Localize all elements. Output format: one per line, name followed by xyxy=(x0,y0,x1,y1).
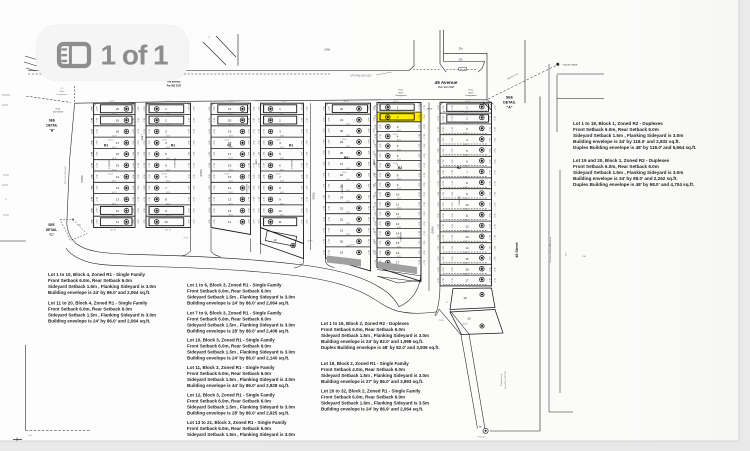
svg-text:45.72: 45.72 xyxy=(166,203,170,205)
svg-text:25.17: 25.17 xyxy=(436,192,438,197)
svg-text:24: 24 xyxy=(340,195,344,199)
svg-text:DETAIL: DETAIL xyxy=(46,228,57,232)
svg-text:36.17: 36.17 xyxy=(378,241,380,246)
svg-text:45.72: 45.72 xyxy=(346,146,350,148)
svg-text:36.17: 36.17 xyxy=(252,152,254,157)
svg-text:36.17: 36.17 xyxy=(367,184,369,189)
svg-text:BLOCK 2: BLOCK 2 xyxy=(399,232,401,242)
svg-text:SEE: SEE xyxy=(49,119,55,123)
svg-text:45.72: 45.72 xyxy=(280,169,284,171)
svg-text:27.43: 27.43 xyxy=(439,320,444,322)
svg-text:123.08: 123.08 xyxy=(162,140,167,142)
svg-text:1003 Plan 972 2752: 1003 Plan 972 2752 xyxy=(64,166,66,185)
svg-text:15: 15 xyxy=(116,164,120,168)
svg-text:36.17: 36.17 xyxy=(137,107,139,112)
svg-text:45.72: 45.72 xyxy=(280,124,284,126)
svg-text:Lot 7 to 9, Block 3, Zoned R1: Lot 7 to 9, Block 3, Zoned R1 - Single F… xyxy=(187,311,282,316)
svg-text:36.17: 36.17 xyxy=(305,197,307,202)
svg-text:Building envelope is 24' by 86: Building envelope is 24' by 86.0' and 2,… xyxy=(48,318,150,323)
svg-text:45.72: 45.72 xyxy=(112,113,116,115)
svg-text:36.17: 36.17 xyxy=(132,129,134,134)
svg-text:Lot 12, Block 3, Zoned R1 - Si: Lot 12, Block 3, Zoned R1 - Single Famil… xyxy=(187,393,275,398)
svg-text:25.17: 25.17 xyxy=(441,267,443,272)
svg-text:36.17: 36.17 xyxy=(132,152,134,157)
svg-text:36.17: 36.17 xyxy=(207,186,209,191)
svg-text:36.17: 36.17 xyxy=(142,129,144,134)
svg-text:123.08: 123.08 xyxy=(108,140,113,142)
svg-text:Front Setback 6.0m, Rear Setba: Front Setback 6.0m, Rear Setback 6.0m xyxy=(48,278,132,283)
svg-text:10: 10 xyxy=(396,193,400,197)
svg-text:45.72: 45.72 xyxy=(229,124,233,126)
svg-text:36.17: 36.17 xyxy=(418,231,420,236)
svg-text:36.17: 36.17 xyxy=(90,208,92,213)
svg-text:123.08: 123.08 xyxy=(276,173,281,175)
svg-text:10: 10 xyxy=(465,203,469,207)
svg-text:123.08: 123.08 xyxy=(342,139,347,141)
svg-text:45.72: 45.72 xyxy=(397,130,401,132)
svg-text:12: 12 xyxy=(116,209,120,213)
svg-text:25.17: 25.17 xyxy=(451,149,453,154)
svg-text:36.17: 36.17 xyxy=(192,140,194,145)
svg-text:36.17: 36.17 xyxy=(247,219,249,224)
svg-text:25.17: 25.17 xyxy=(493,138,495,143)
svg-text:36.17: 36.17 xyxy=(327,217,329,222)
svg-text:R1: R1 xyxy=(289,143,293,147)
svg-text:36.17: 36.17 xyxy=(212,163,214,168)
svg-text:36.17: 36.17 xyxy=(90,197,92,202)
svg-text:36.17: 36.17 xyxy=(192,118,194,123)
svg-text:36.17: 36.17 xyxy=(322,128,324,133)
svg-text:45.72: 45.72 xyxy=(112,169,116,171)
svg-text:21: 21 xyxy=(340,229,344,233)
svg-text:Building envelope is 34' by 11: Building envelope is 34' by 118.0' and 2… xyxy=(573,139,680,144)
svg-text:36.17: 36.17 xyxy=(192,208,194,213)
svg-text:36.17: 36.17 xyxy=(305,129,307,134)
svg-text:m: m xyxy=(208,37,210,39)
svg-text:36.17: 36.17 xyxy=(212,219,214,224)
svg-text:36.17: 36.17 xyxy=(367,239,369,244)
svg-text:36.17: 36.17 xyxy=(322,106,324,111)
svg-text:25.17: 25.17 xyxy=(451,267,453,272)
svg-text:36.17: 36.17 xyxy=(322,250,324,255)
svg-text:25.17: 25.17 xyxy=(493,127,495,132)
svg-text:36.17: 36.17 xyxy=(300,152,302,157)
svg-text:25.17: 25.17 xyxy=(441,149,443,154)
svg-text:45.72: 45.72 xyxy=(280,192,284,194)
svg-text:25.17: 25.17 xyxy=(441,116,443,121)
svg-text:14: 14 xyxy=(465,246,469,250)
svg-text:36.17: 36.17 xyxy=(212,197,214,202)
svg-text:17: 17 xyxy=(116,141,120,145)
svg-text:45.72: 45.72 xyxy=(397,178,401,180)
svg-text:36.17: 36.17 xyxy=(300,197,302,202)
svg-text:Lot 19 and 20, Block 1, Zoned: Lot 19 and 20, Block 1, Zoned R2 - Duple… xyxy=(573,158,670,163)
svg-text:25.17: 25.17 xyxy=(441,105,443,110)
svg-text:45.72: 45.72 xyxy=(166,215,170,217)
svg-text:Lot 1 to 16, Block 2, Zoned R2: Lot 1 to 16, Block 2, Zoned R2 - Duplexe… xyxy=(321,321,410,326)
svg-text:Lot 1 to 10, Block 4, Zoned R1: Lot 1 to 10, Block 4, Zoned R1 - Single … xyxy=(48,272,146,277)
svg-text:36.17: 36.17 xyxy=(378,212,380,217)
svg-text:36.17: 36.17 xyxy=(142,152,144,157)
svg-text:36.17: 36.17 xyxy=(262,118,264,123)
svg-text:25.17: 25.17 xyxy=(436,246,438,251)
svg-text:36.17: 36.17 xyxy=(252,186,254,191)
svg-text:36.17: 36.17 xyxy=(423,153,425,158)
svg-text:36.17: 36.17 xyxy=(257,174,259,179)
svg-text:36.17: 36.17 xyxy=(147,107,149,112)
svg-text:36.17: 36.17 xyxy=(187,197,189,202)
svg-text:36.17: 36.17 xyxy=(247,163,249,168)
svg-text:45.72: 45.72 xyxy=(464,144,468,146)
svg-text:25.17: 25.17 xyxy=(493,224,495,229)
svg-text:101.67: 101.67 xyxy=(165,230,172,232)
svg-text:25.17: 25.17 xyxy=(441,203,443,208)
svg-text:Front Setback 6.0m, Rear Setba: Front Setback 6.0m, Rear Setback 6.0m xyxy=(187,316,271,321)
svg-text:R1: R1 xyxy=(227,143,231,147)
svg-text:45.72: 45.72 xyxy=(280,215,284,217)
svg-text:45.72: 45.72 xyxy=(346,223,350,225)
svg-text:36.17: 36.17 xyxy=(322,195,324,200)
svg-text:45.72: 45.72 xyxy=(393,101,399,103)
svg-text:45 Avenue: 45 Avenue xyxy=(435,80,458,85)
svg-text:36.17: 36.17 xyxy=(373,153,375,158)
svg-text:36.17: 36.17 xyxy=(132,197,134,202)
svg-text:36.17: 36.17 xyxy=(378,153,380,158)
svg-text:36.17: 36.17 xyxy=(252,197,254,202)
svg-text:36.17: 36.17 xyxy=(418,260,420,265)
svg-text:36.17: 36.17 xyxy=(423,134,425,139)
svg-text:25.17: 25.17 xyxy=(493,181,495,186)
svg-text:36.17: 36.17 xyxy=(147,129,149,134)
svg-text:36.17: 36.17 xyxy=(132,174,134,179)
svg-text:Lot 1 to 18, Block 1, Zoned R2: Lot 1 to 18, Block 1, Zoned R2 - Duplexe… xyxy=(573,121,663,126)
svg-text:25.17: 25.17 xyxy=(493,203,495,208)
svg-text:16: 16 xyxy=(465,268,469,272)
svg-text:36.17: 36.17 xyxy=(378,124,380,129)
svg-text:36.17: 36.17 xyxy=(327,250,329,255)
svg-text:36.17: 36.17 xyxy=(423,221,425,226)
svg-text:36.17: 36.17 xyxy=(137,186,139,191)
svg-text:36.17: 36.17 xyxy=(142,197,144,202)
svg-text:36.17: 36.17 xyxy=(300,208,302,213)
svg-text:25.17: 25.17 xyxy=(451,246,453,251)
svg-text:BLOCK 3: BLOCK 3 xyxy=(290,159,292,169)
svg-text:25.17: 25.17 xyxy=(451,181,453,186)
svg-text:36.17: 36.17 xyxy=(212,152,214,157)
svg-text:45.72: 45.72 xyxy=(280,203,284,205)
svg-text:Bsmt: Bsmt xyxy=(60,90,65,93)
svg-text:36.17: 36.17 xyxy=(212,186,214,191)
svg-text:21*: 21* xyxy=(446,302,449,304)
svg-text:45.72: 45.72 xyxy=(109,101,115,103)
svg-text:36.17: 36.17 xyxy=(207,140,209,145)
svg-text:123.08: 123.08 xyxy=(224,140,229,142)
svg-text:36.17: 36.17 xyxy=(378,202,380,207)
svg-text:Front Setback 6.0m, Rear Setba: Front Setback 6.0m, Rear Setback 6.0m xyxy=(48,306,132,311)
svg-text:25.17: 25.17 xyxy=(436,267,438,272)
svg-text:45.72: 45.72 xyxy=(112,203,116,205)
svg-text:36.17: 36.17 xyxy=(95,174,97,179)
svg-text:44.79: 44.79 xyxy=(349,245,355,247)
svg-text:Smin: Smin xyxy=(566,252,568,256)
svg-text:Sideyard Setback 1.5m , Flanki: Sideyard Setback 1.5m , Flanking Sideyar… xyxy=(187,377,295,382)
svg-text:Front Setback 4.0m, Rear Setba: Front Setback 4.0m, Rear Setback 6.0m xyxy=(321,367,405,372)
svg-text:R1: R1 xyxy=(104,143,108,147)
svg-text:45.72: 45.72 xyxy=(166,147,170,149)
svg-text:36.17: 36.17 xyxy=(378,115,380,120)
svg-text:36.17: 36.17 xyxy=(95,186,97,191)
svg-text:45.72: 45.72 xyxy=(464,133,468,135)
svg-text:36.17: 36.17 xyxy=(327,195,329,200)
svg-text:17: 17 xyxy=(228,152,232,156)
svg-text:Lot 13 to 21, Block 3, Zoned R: Lot 13 to 21, Block 3, Zoned R1 - Single… xyxy=(187,420,287,425)
svg-text:36.17: 36.17 xyxy=(187,174,189,179)
svg-text:36.17: 36.17 xyxy=(132,140,134,145)
svg-text:45.72: 45.72 xyxy=(397,140,401,142)
svg-text:BLOCK 3: BLOCK 3 xyxy=(245,184,247,194)
svg-text:45.72: 45.72 xyxy=(229,192,233,194)
svg-text:36.17: 36.17 xyxy=(327,228,329,233)
svg-text:123.08: 123.08 xyxy=(342,172,347,174)
svg-text:36.17: 36.17 xyxy=(90,129,92,134)
svg-text:11: 11 xyxy=(396,202,399,206)
svg-text:19: 19 xyxy=(463,296,467,300)
svg-text:36.17: 36.17 xyxy=(423,231,425,236)
svg-text:36.17: 36.17 xyxy=(142,219,144,224)
svg-text:36.17: 36.17 xyxy=(373,250,375,255)
svg-text:36.17: 36.17 xyxy=(192,107,194,112)
svg-text:Front Setback 6.0m, Rear Setba: Front Setback 6.0m, Rear Setback 6.0m xyxy=(573,164,659,169)
svg-text:Building envelope is 28' by 86: Building envelope is 28' by 86.0' and 2,… xyxy=(187,410,289,415)
svg-text:36.17: 36.17 xyxy=(327,106,329,111)
svg-text:Bsmt: Bsmt xyxy=(399,91,404,94)
svg-text:25.17: 25.17 xyxy=(488,257,490,262)
svg-text:45.72: 45.72 xyxy=(229,181,233,183)
svg-text:19: 19 xyxy=(228,130,232,134)
svg-text:45.72: 45.72 xyxy=(166,181,170,183)
svg-text:36.17: 36.17 xyxy=(378,173,380,178)
svg-text:25.17: 25.17 xyxy=(488,235,490,240)
svg-text:25.17: 25.17 xyxy=(451,213,453,218)
svg-text:25.17: 25.17 xyxy=(493,170,495,175)
svg-text:25.17: 25.17 xyxy=(488,224,490,229)
svg-text:10: 10 xyxy=(278,209,282,213)
svg-text:36.17: 36.17 xyxy=(373,192,375,197)
svg-text:45.72: 45.72 xyxy=(397,159,401,161)
svg-text:36.17: 36.17 xyxy=(95,219,97,224)
svg-text:36.17: 36.17 xyxy=(132,163,134,168)
svg-text:36.17: 36.17 xyxy=(327,128,329,133)
svg-text:36.17: 36.17 xyxy=(418,182,420,187)
svg-text:Building envelope is 24' by 82: Building envelope is 24' by 82.0' and 1,… xyxy=(321,339,423,344)
svg-text:36.17: 36.17 xyxy=(137,219,139,224)
svg-text:25.17: 25.17 xyxy=(488,203,490,208)
svg-text:36.17: 36.17 xyxy=(90,163,92,168)
svg-text:36.17: 36.17 xyxy=(423,173,425,178)
svg-text:36.17: 36.17 xyxy=(373,134,375,139)
svg-text:45.72: 45.72 xyxy=(464,274,468,276)
svg-text:36.17: 36.17 xyxy=(423,192,425,197)
svg-text:36.17: 36.17 xyxy=(423,260,425,265)
svg-text:36.17: 36.17 xyxy=(90,107,92,112)
svg-text:"A": "A" xyxy=(506,106,512,110)
svg-text:45.72: 45.72 xyxy=(397,120,401,122)
svg-text:45.72: 45.72 xyxy=(464,122,468,124)
svg-text:36.17: 36.17 xyxy=(378,192,380,197)
svg-text:36.17: 36.17 xyxy=(367,117,369,122)
svg-text:13: 13 xyxy=(465,235,469,239)
svg-text:36.17: 36.17 xyxy=(300,140,302,145)
svg-text:8.04': 8.04' xyxy=(56,108,61,110)
svg-text:36.17: 36.17 xyxy=(367,140,369,145)
svg-text:36.17: 36.17 xyxy=(367,206,369,211)
svg-text:22: 22 xyxy=(340,217,344,221)
svg-text:36.17: 36.17 xyxy=(192,163,194,168)
svg-text:45.72: 45.72 xyxy=(346,190,350,192)
svg-text:25.17: 25.17 xyxy=(436,203,438,208)
svg-text:36.17: 36.17 xyxy=(378,105,380,110)
svg-text:36.17: 36.17 xyxy=(187,129,189,134)
svg-text:45.72: 45.72 xyxy=(280,136,284,138)
svg-text:25.17: 25.17 xyxy=(441,138,443,143)
svg-text:P.U.L.: P.U.L. xyxy=(398,90,404,92)
svg-text:36.17: 36.17 xyxy=(95,197,97,202)
svg-text:36.17: 36.17 xyxy=(262,174,264,179)
svg-text:Sideyard Setback 1.5m , Flanki: Sideyard Setback 1.5m , Flanking Sideyar… xyxy=(187,349,295,354)
svg-text:Sideyard Setback 1.5m , Flanki: Sideyard Setback 1.5m , Flanking Sideyar… xyxy=(321,333,429,338)
svg-text:Duplex Building envelope is 48: Duplex Building envelope is 48' by 118.0… xyxy=(573,145,696,150)
svg-text:45.72: 45.72 xyxy=(397,208,401,210)
svg-text:25.17: 25.17 xyxy=(436,278,438,283)
svg-text:36.17: 36.17 xyxy=(305,163,307,168)
svg-text:123.08: 123.08 xyxy=(123,225,129,227)
svg-text:123.08: 123.08 xyxy=(393,163,398,165)
svg-text:Front Setback 6.0m, Rear Setba: Front Setback 6.0m, Rear Setback 6.0m xyxy=(187,426,271,431)
svg-text:36.17: 36.17 xyxy=(212,107,214,112)
svg-text:45.72: 45.72 xyxy=(166,124,170,126)
svg-text:ROAD: ROAD xyxy=(199,170,202,177)
svg-text:Sideyard Setback 1.5m , Flanki: Sideyard Setback 1.5m , Flanking Sideyar… xyxy=(187,322,295,327)
svg-text:14: 14 xyxy=(228,186,232,190)
svg-text:45.72: 45.72 xyxy=(464,230,468,232)
svg-text:25.17: 25.17 xyxy=(451,278,453,283)
svg-text:Building envelope is 24' by 86: Building envelope is 24' by 86.0' and 2,… xyxy=(187,355,289,360)
svg-text:36.17: 36.17 xyxy=(305,174,307,179)
svg-text:36.17: 36.17 xyxy=(262,163,264,168)
svg-text:25.17: 25.17 xyxy=(436,224,438,229)
svg-text:36.17: 36.17 xyxy=(252,140,254,145)
svg-text:45.72: 45.72 xyxy=(166,113,170,115)
svg-text:Building envelope is 28' by 86: Building envelope is 28' by 86.0' and 2,… xyxy=(187,328,289,333)
svg-text:36.17: 36.17 xyxy=(327,117,329,122)
svg-text:45.72: 45.72 xyxy=(112,181,116,183)
svg-text:36.17: 36.17 xyxy=(187,118,189,123)
svg-text:36.17: 36.17 xyxy=(192,219,194,224)
svg-text:36.17: 36.17 xyxy=(262,152,264,157)
svg-text:36.17: 36.17 xyxy=(378,134,380,139)
svg-text:Sideyard Setback 1.5m , Flanki: Sideyard Setback 1.5m , Flanking Sideyar… xyxy=(321,373,429,378)
svg-text:25.17: 25.17 xyxy=(436,127,438,132)
svg-text:36.17: 36.17 xyxy=(257,197,259,202)
svg-text:25.17: 25.17 xyxy=(488,159,490,164)
svg-text:36.17: 36.17 xyxy=(252,219,254,224)
svg-text:45.72: 45.72 xyxy=(397,149,401,151)
svg-text:36.17: 36.17 xyxy=(257,186,259,191)
svg-text:4.4h: 4.4h xyxy=(77,225,81,227)
svg-text:36.17: 36.17 xyxy=(137,140,139,145)
svg-text:11: 11 xyxy=(465,214,468,218)
svg-text:36.17: 36.17 xyxy=(257,152,259,157)
svg-text:45.72: 45.72 xyxy=(346,234,350,236)
svg-text:Building envelope is 24' by 86: Building envelope is 24' by 86.9' and 2,… xyxy=(321,406,423,411)
svg-text:VISION 34ENE: VISION 34ENE xyxy=(563,65,578,67)
svg-text:R1: R1 xyxy=(344,156,348,160)
svg-text:36.17: 36.17 xyxy=(322,239,324,244)
svg-text:36.17: 36.17 xyxy=(90,118,92,123)
svg-text:36.17: 36.17 xyxy=(132,186,134,191)
svg-text:25.17: 25.17 xyxy=(441,159,443,164)
svg-text:36.17: 36.17 xyxy=(95,107,97,112)
svg-text:36.17: 36.17 xyxy=(305,107,307,112)
svg-text:17a: 17a xyxy=(458,48,463,51)
svg-text:25.17: 25.17 xyxy=(436,159,438,164)
svg-text:SEE: SEE xyxy=(48,223,54,227)
svg-text:36.17: 36.17 xyxy=(373,115,375,120)
svg-text:36.17: 36.17 xyxy=(367,195,369,200)
svg-text:36.17: 36.17 xyxy=(257,219,259,224)
svg-text:45.72: 45.72 xyxy=(166,158,170,160)
svg-text:Front Setback 6.0m, Rear Setba: Front Setback 6.0m, Rear Setback 6.0m xyxy=(187,343,271,348)
svg-text:25.17: 25.17 xyxy=(451,159,453,164)
svg-text:ROAD: ROAD xyxy=(431,227,434,234)
svg-text:36.17: 36.17 xyxy=(132,107,134,112)
svg-text:36.17: 36.17 xyxy=(423,241,425,246)
svg-text:36.17: 36.17 xyxy=(137,208,139,213)
svg-text:BLOCK 4: BLOCK 4 xyxy=(108,159,110,169)
svg-text:36.17: 36.17 xyxy=(142,107,144,112)
svg-text:36.17: 36.17 xyxy=(192,129,194,134)
svg-text:45.72: 45.72 xyxy=(112,136,116,138)
svg-text:25.17: 25.17 xyxy=(441,224,443,229)
svg-text:36.17: 36.17 xyxy=(300,174,302,179)
svg-text:36.17: 36.17 xyxy=(187,163,189,168)
svg-text:25.17: 25.17 xyxy=(488,278,490,283)
svg-text:36.17: 36.17 xyxy=(132,219,134,224)
svg-text:20: 20 xyxy=(467,317,471,321)
svg-text:36.17: 36.17 xyxy=(423,202,425,207)
svg-text:25.17: 25.17 xyxy=(436,170,438,175)
svg-text:36.17: 36.17 xyxy=(247,118,249,123)
svg-text:36.17: 36.17 xyxy=(252,208,254,213)
svg-text:36.17: 36.17 xyxy=(378,250,380,255)
svg-text:12: 12 xyxy=(396,212,400,216)
svg-text:25.17: 25.17 xyxy=(451,138,453,143)
svg-text:12: 12 xyxy=(228,209,232,213)
svg-text:45.72: 45.72 xyxy=(281,101,287,103)
svg-text:25.17: 25.17 xyxy=(436,138,438,143)
svg-text:25.17: 25.17 xyxy=(436,235,438,240)
svg-text:Sideyard Setback 1.5m , Flanki: Sideyard Setback 1.5m , Flanking Sideyar… xyxy=(573,170,683,175)
svg-text:36.17: 36.17 xyxy=(207,118,209,123)
svg-text:36.17: 36.17 xyxy=(207,197,209,202)
svg-text:36.17: 36.17 xyxy=(95,129,97,134)
svg-text:36.17: 36.17 xyxy=(257,140,259,145)
svg-text:25.17: 25.17 xyxy=(488,181,490,186)
svg-text:36.17: 36.17 xyxy=(378,144,380,149)
svg-text:25.17: 25.17 xyxy=(493,116,495,121)
svg-text:36.17: 36.17 xyxy=(212,129,214,134)
svg-text:Front Setback 6.0m, Rear Setba: Front Setback 6.0m, Rear Setback 6.0m xyxy=(187,288,271,293)
